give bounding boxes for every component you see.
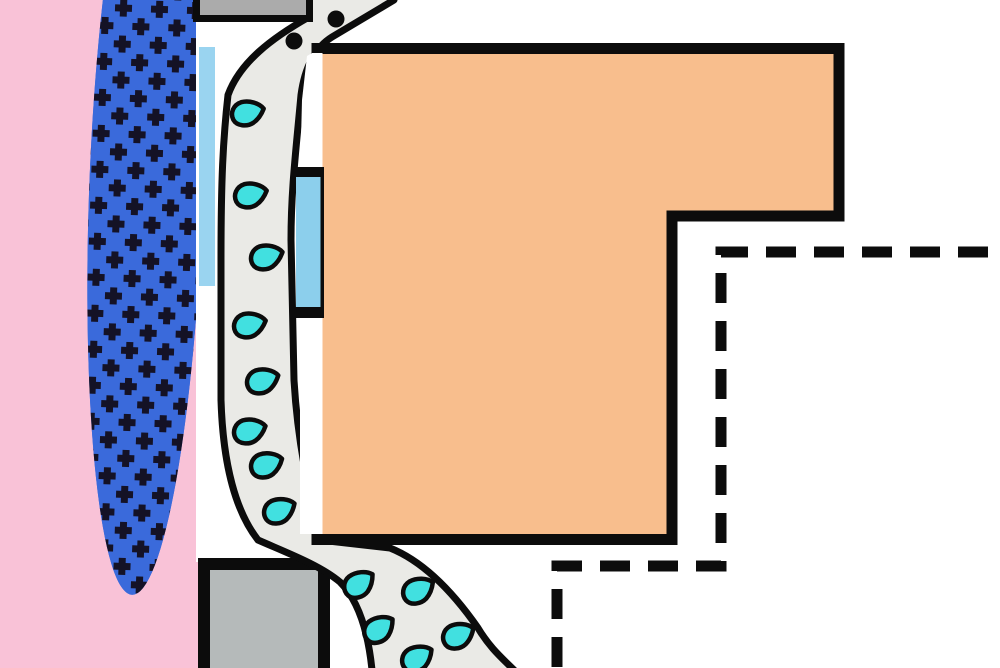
diagram-stage [0, 0, 1000, 668]
right-window-top-edge [293, 167, 324, 177]
cross-section-diagram [0, 0, 1000, 668]
right-window-glass [296, 174, 322, 310]
upper-device-block [197, 0, 310, 19]
left-channel-window [199, 47, 215, 286]
pore-dot-icon [328, 11, 345, 28]
right-window-bottom-edge [293, 307, 324, 318]
pore-dot-icon [286, 33, 303, 50]
right-window-right-edge [321, 167, 325, 318]
lower-device-block [204, 564, 324, 668]
right-channel-window [293, 167, 324, 318]
